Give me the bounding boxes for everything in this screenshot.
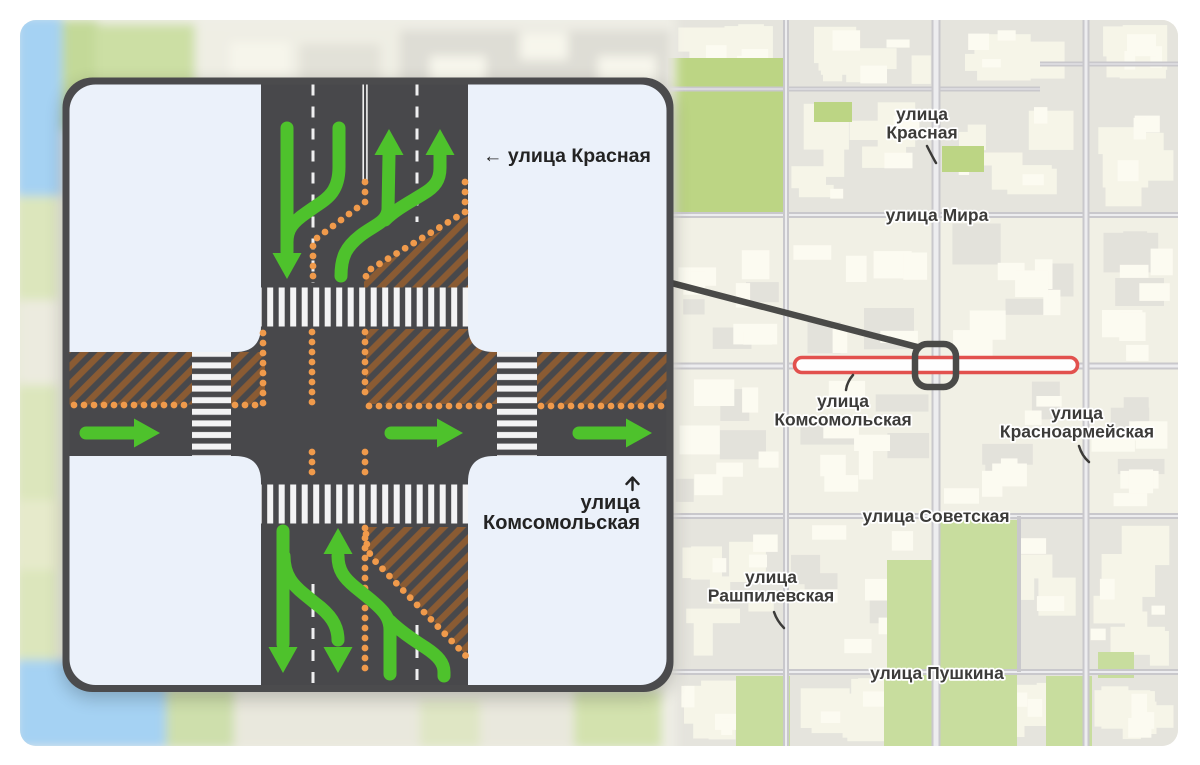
svg-text:← улица Красная: ← улица Красная <box>483 145 651 167</box>
svg-text:улица Советская: улица Советская <box>862 506 1009 526</box>
svg-text:улица: улица <box>580 492 640 514</box>
svg-text:Комсомольская: Комсомольская <box>483 512 640 534</box>
svg-text:улицаКрасная: улицаКрасная <box>886 104 957 143</box>
svg-text:улица Мира: улица Мира <box>886 205 989 225</box>
svg-text:улица Пушкина: улица Пушкина <box>870 663 1004 683</box>
